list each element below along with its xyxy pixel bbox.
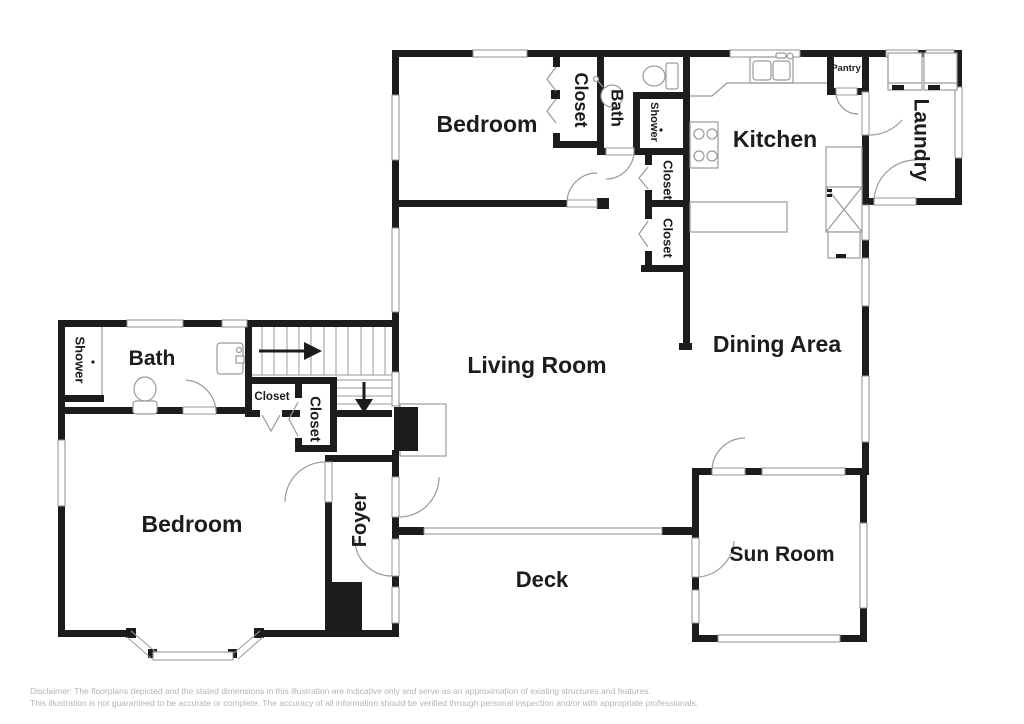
label-bath-upper: Bath [608,89,627,127]
label-kitchen: Kitchen [733,126,817,152]
stairs-down-arrow [355,382,373,413]
label-fireplace: Fireplace [403,414,410,445]
label-bath-main: Bath [129,347,176,370]
label-pantry: Pantry [831,63,861,74]
label-shower-main: Shower [73,337,88,384]
label-bedroom-main: Bedroom [142,511,243,537]
toilet-main-fixture [133,377,157,414]
washer-fixture [888,53,922,90]
disclaimer-line-1: Disclaimer: The floorplans depicted and … [30,686,651,696]
label-closet-hall-2: Closet [661,218,676,258]
label-closet-hall-1: Closet [661,160,676,200]
disclaimer-line-2: This illustration is not guaranteed to b… [30,698,698,708]
closet-bedroom-bifold [289,402,298,436]
stove-fixture [690,122,718,168]
label-laundry: Laundry [910,99,933,182]
floorplan-page: Bedroom Closet Bath Shower Closet Closet… [0,0,1024,724]
sink-main-fixture [217,343,244,374]
label-closet-bedroom: Closet [307,396,324,442]
label-closet-upper: Closet [571,72,591,127]
label-closet-stair: Closet [254,391,289,403]
shower-main-drain [91,360,94,363]
label-shower-upper: Shower [648,102,660,142]
kitchen-sink-fixture [750,53,793,83]
toilet-upper-fixture [643,63,678,89]
closet-stair-door [262,415,280,431]
label-living-room: Living Room [467,352,606,378]
label-sun-room: Sun Room [730,543,835,566]
dryer-fixture [924,53,957,90]
disclaimer: Disclaimer: The floorplans depicted and … [30,686,698,708]
label-bedroom-upper: Bedroom [437,111,538,137]
deck-glass-wall [424,528,662,534]
label-deck: Deck [516,567,569,592]
label-dining-area: Dining Area [713,331,841,357]
label-foyer: Foyer [349,493,371,548]
floorplan-drawing: Bedroom Closet Bath Shower Closet Closet… [0,0,1024,724]
water-heater-fixture [826,147,862,258]
stairs-up-arrow [259,342,322,360]
room-labels: Bedroom Closet Bath Shower Closet Closet… [73,63,933,592]
